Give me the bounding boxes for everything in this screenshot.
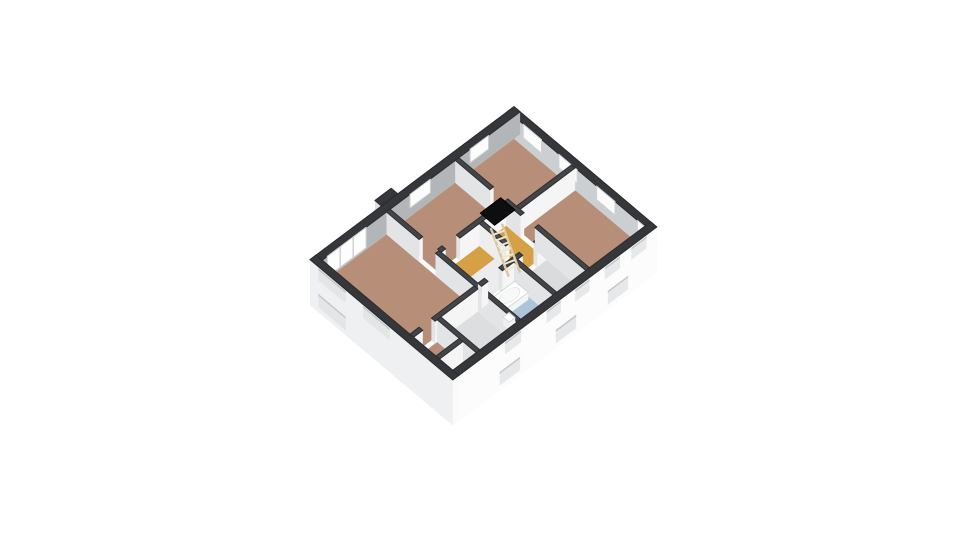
wall-right-b-side-r <box>521 213 525 238</box>
wall-bath-north-stub-side-l <box>478 283 482 309</box>
floor-plan-stage <box>0 0 960 540</box>
wall-bath-north-side-l <box>499 268 503 294</box>
floor-plan-3d <box>0 0 960 540</box>
wall-landing-north-side-l <box>456 235 460 261</box>
wall-bedroom-1-south-b-side-l <box>431 318 435 344</box>
wall-sw-side-r <box>453 375 459 425</box>
wall-bedroom-1-upper-side-r <box>419 237 423 262</box>
